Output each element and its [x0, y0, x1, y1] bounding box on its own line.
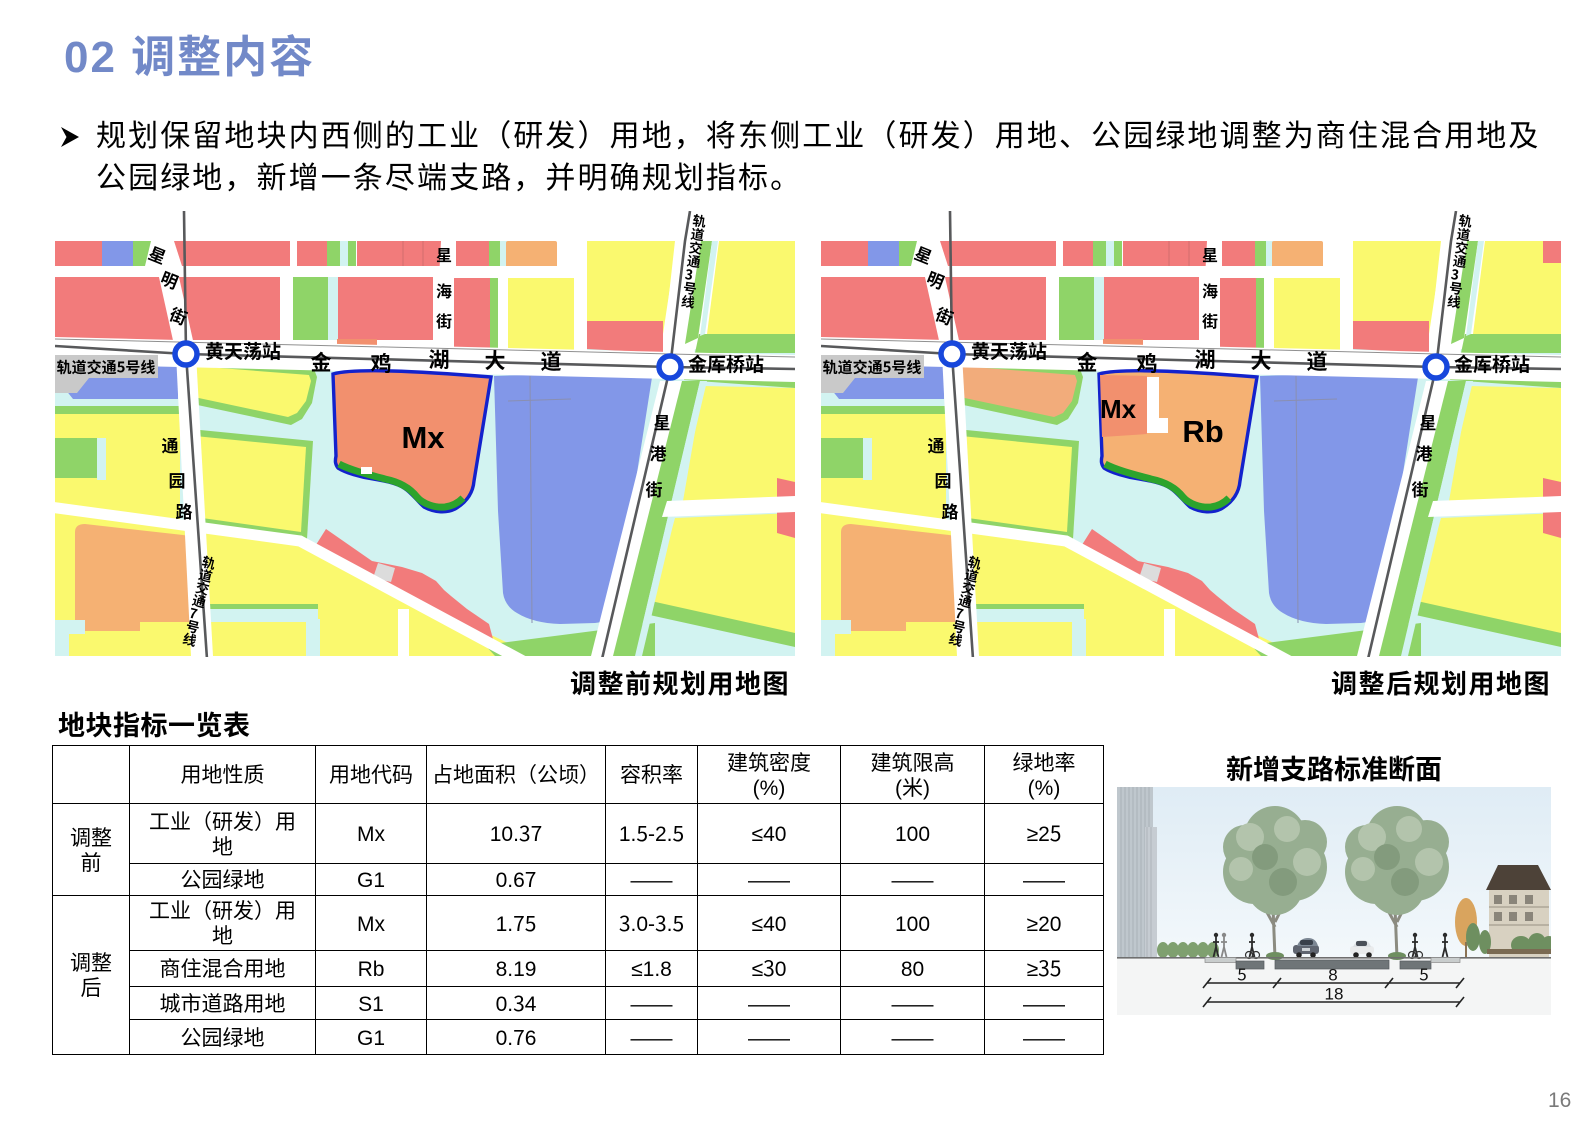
svg-text:街: 街 — [1412, 476, 1429, 501]
svg-text:Mx: Mx — [401, 412, 445, 457]
svg-text:通: 通 — [162, 432, 179, 457]
svg-text:港: 港 — [1416, 440, 1433, 465]
svg-text:通: 通 — [928, 432, 945, 457]
svg-text:Mx: Mx — [1100, 389, 1137, 426]
svg-text:海: 海 — [1202, 278, 1218, 302]
svg-text:星: 星 — [1202, 242, 1218, 266]
svg-text:星: 星 — [654, 409, 671, 434]
svg-text:湖: 湖 — [429, 344, 450, 374]
svg-text:金: 金 — [1077, 347, 1098, 377]
svg-text:鸡: 鸡 — [1137, 348, 1158, 378]
svg-text:Rb: Rb — [1182, 406, 1223, 451]
svg-text:湖: 湖 — [1195, 344, 1216, 374]
svg-text:金厍桥站: 金厍桥站 — [1454, 350, 1530, 377]
svg-text:黄天荡站: 黄天荡站 — [205, 337, 281, 364]
svg-text:轨道交通5号线: 轨道交通5号线 — [57, 357, 156, 378]
svg-text:5: 5 — [1237, 961, 1246, 986]
svg-text:路: 路 — [942, 498, 959, 523]
svg-text:道: 道 — [541, 346, 562, 376]
svg-text:街: 街 — [1202, 308, 1218, 332]
svg-text:18: 18 — [1325, 980, 1344, 1005]
svg-text:金厍桥站: 金厍桥站 — [688, 350, 764, 377]
svg-text:黄天荡站: 黄天荡站 — [971, 337, 1047, 364]
svg-text:轨道交通5号线: 轨道交通5号线 — [823, 357, 922, 378]
svg-text:海: 海 — [436, 278, 452, 302]
svg-text:星: 星 — [436, 242, 452, 266]
svg-text:金: 金 — [311, 347, 332, 377]
svg-text:港: 港 — [650, 440, 667, 465]
svg-text:星: 星 — [1420, 409, 1437, 434]
svg-text:鸡: 鸡 — [371, 348, 392, 378]
svg-text:5: 5 — [1419, 961, 1428, 986]
svg-text:街: 街 — [436, 308, 452, 332]
svg-text:大: 大 — [1251, 345, 1272, 375]
svg-text:路: 路 — [176, 498, 193, 523]
svg-text:大: 大 — [485, 345, 506, 375]
svg-text:道: 道 — [1307, 346, 1328, 376]
svg-text:园: 园 — [169, 467, 186, 492]
svg-text:街: 街 — [646, 476, 663, 501]
svg-text:园: 园 — [935, 467, 952, 492]
